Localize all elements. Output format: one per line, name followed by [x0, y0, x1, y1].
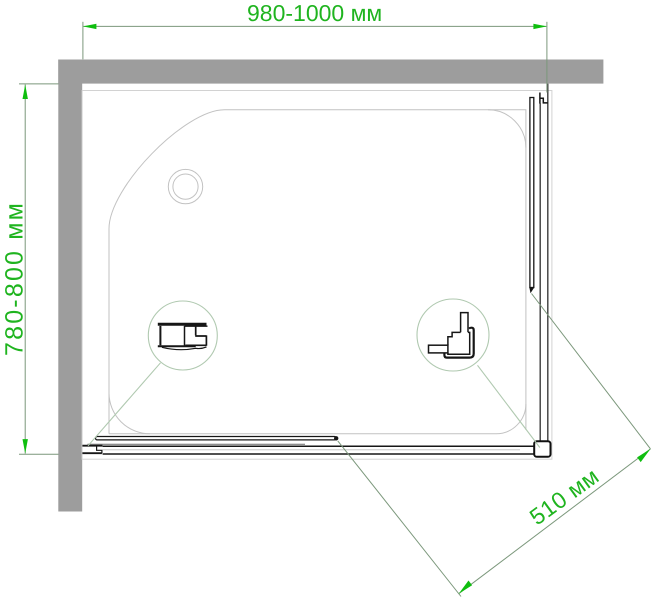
svg-text:980-1000 мм: 980-1000 мм	[247, 0, 382, 26]
svg-text:510 мм: 510 мм	[525, 463, 604, 530]
svg-text:780-800 мм: 780-800 мм	[0, 201, 28, 356]
